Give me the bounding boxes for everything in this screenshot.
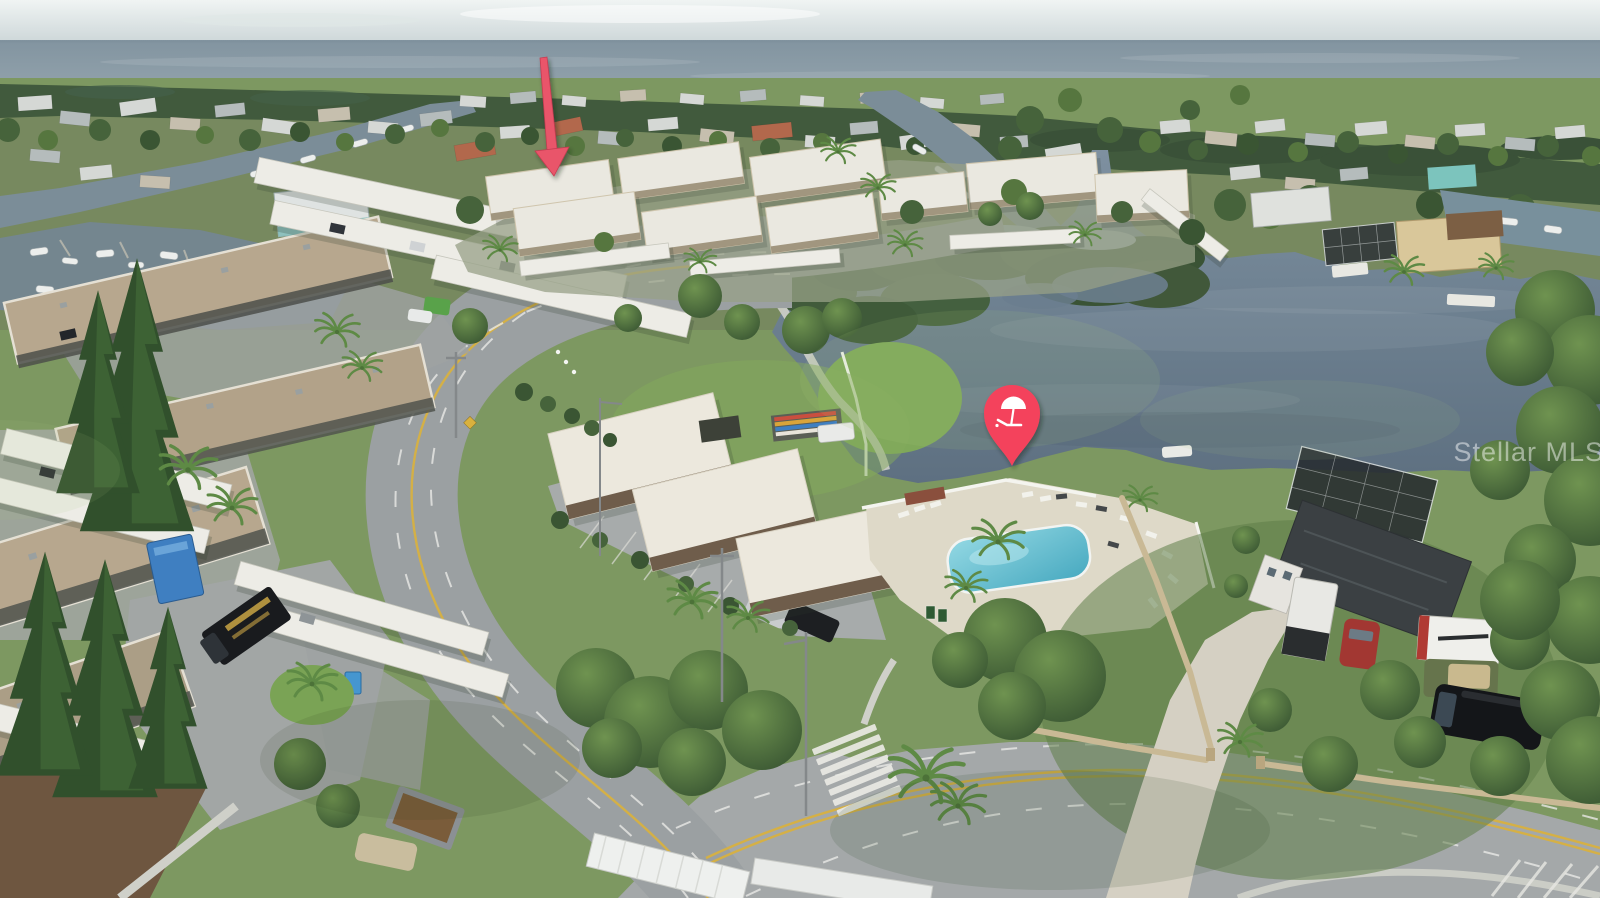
wall-pillar [1206,748,1215,761]
red-car [1339,618,1381,671]
pool-screen-enclosure [1322,222,1397,265]
wall-pillar [1256,756,1265,769]
porta-toilet [926,606,935,619]
white-house [1251,187,1332,228]
watermark: Stellar MLS [1453,437,1600,467]
teal-roof-house [1427,164,1476,189]
aerial-photo: Stellar MLS [0,0,1600,898]
aerial-photo-canvas: Stellar MLS [0,0,1600,898]
porta-toilet [938,609,947,622]
